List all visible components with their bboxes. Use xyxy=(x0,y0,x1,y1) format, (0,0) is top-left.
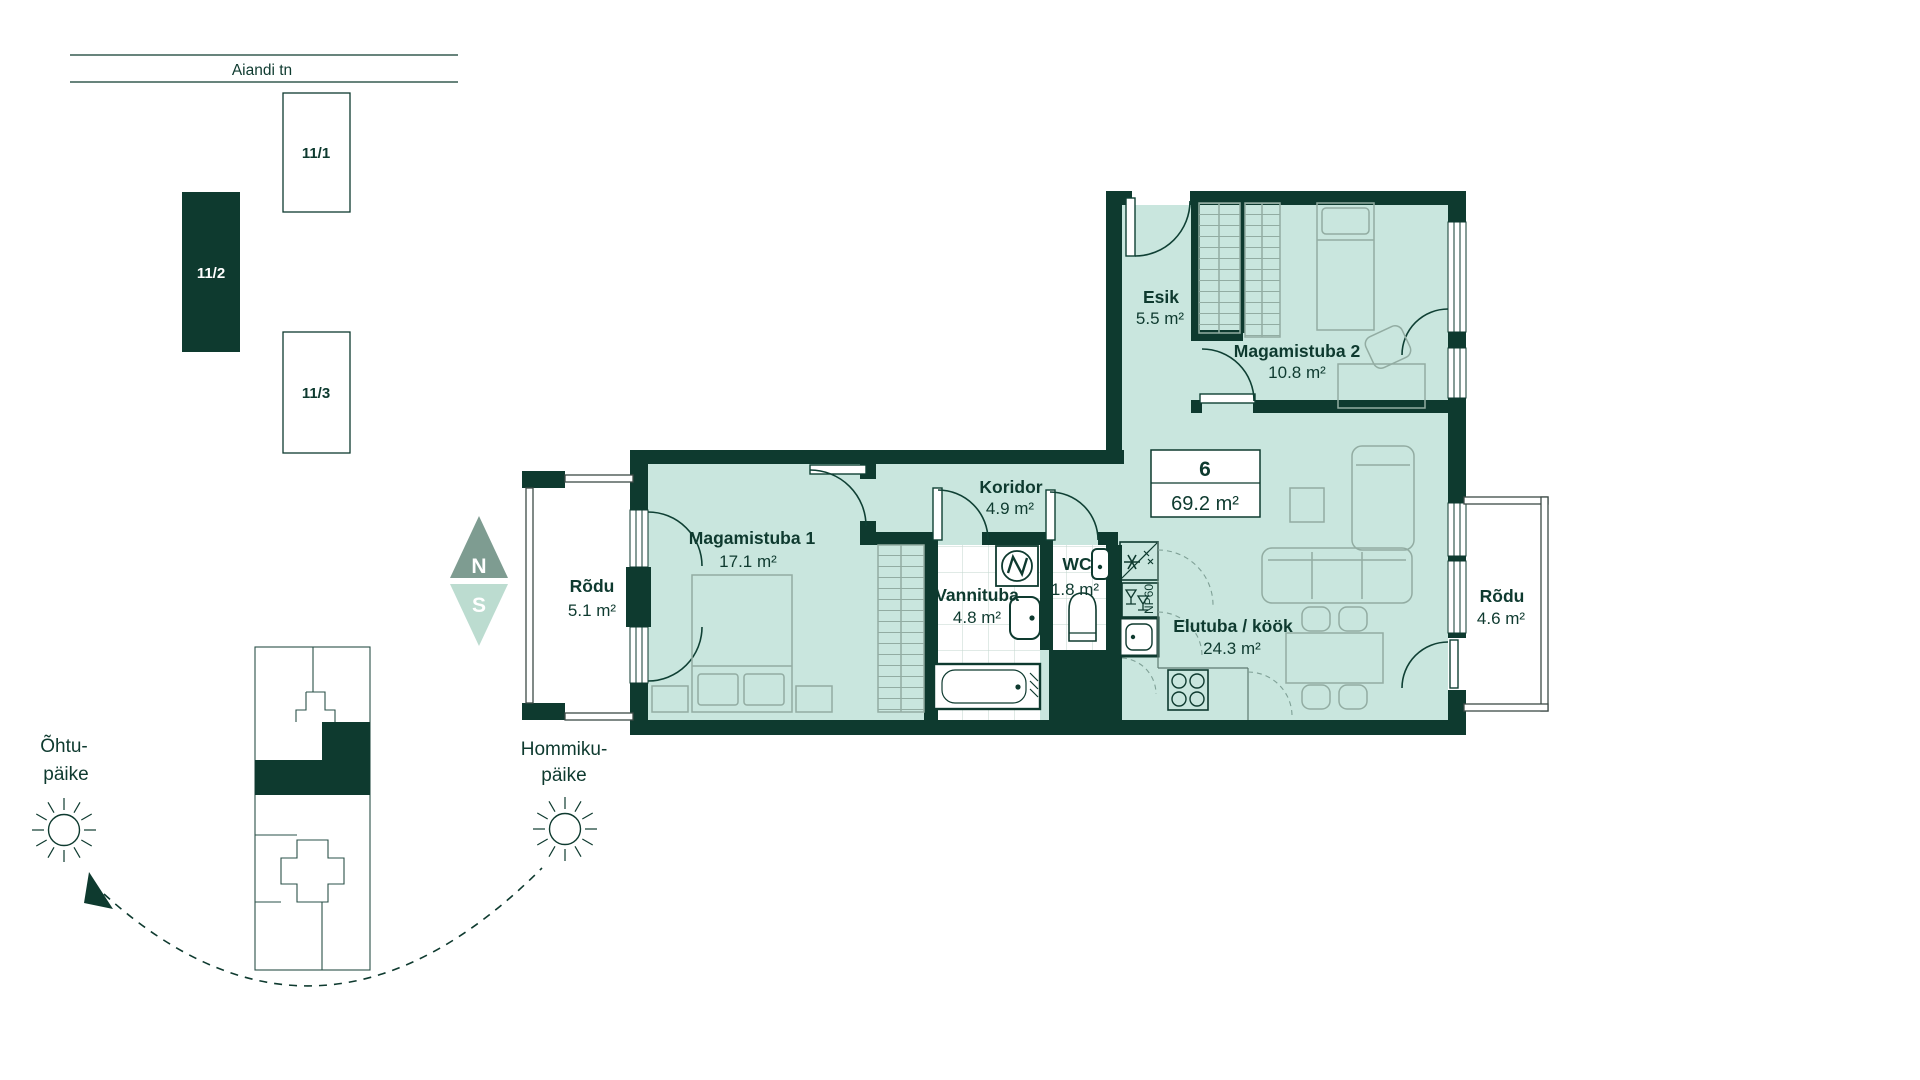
wall-rightwing-west-upper xyxy=(1106,191,1122,462)
window-bedroom2 xyxy=(1448,222,1466,332)
wardrobe-bedroom2-a xyxy=(1199,203,1240,333)
label-bathroom-area: 4.8 m² xyxy=(953,608,1002,627)
building-11-1-label: 11/1 xyxy=(302,145,330,162)
building-footprint xyxy=(255,647,370,970)
label-living-area: 24.3 m² xyxy=(1203,639,1261,658)
footprint-outline xyxy=(255,647,370,970)
compass-north-letter: N xyxy=(471,555,486,578)
window-bedroom1-lower xyxy=(630,627,648,683)
building-11-3-label: 11/3 xyxy=(302,385,330,402)
wardrobe-bedroom1 xyxy=(878,545,924,712)
unit-number: 6 xyxy=(1199,458,1211,481)
wall-corridor-south-2 xyxy=(982,532,1053,545)
sun-evening: Õhtu- päike xyxy=(32,735,96,862)
street-name: Aiandi tn xyxy=(232,62,292,79)
label-bedroom1-area: 17.1 m² xyxy=(719,552,777,571)
morning-sun-icon xyxy=(533,797,597,861)
label-bedroom1-name: Magamistuba 1 xyxy=(689,528,816,548)
wardrobe-bedroom2-b xyxy=(1245,203,1280,337)
wc-washbasin-icon xyxy=(1092,549,1109,579)
balcony-left-rail-top xyxy=(565,475,633,482)
label-corridor-name: Koridor xyxy=(979,477,1042,497)
balcony-left-block-top xyxy=(522,471,565,488)
label-hall-area: 5.5 m² xyxy=(1136,309,1185,328)
floorplan-canvas: Aiandi tn 11/1 11/2 11/3 N S xyxy=(0,0,1920,1080)
balcony-right-rail-bottom xyxy=(1464,704,1548,711)
window-living-upper xyxy=(1448,503,1466,556)
label-bathroom-name: Vannituba xyxy=(935,585,1019,605)
compass: N S xyxy=(450,516,508,646)
morning-sun-label-line2: päike xyxy=(541,765,586,786)
wall-west-lower xyxy=(630,683,648,735)
morning-sun-label-line1: Hommiku- xyxy=(521,739,608,760)
wall-west-pier xyxy=(626,567,651,627)
evening-sun-label-line2: päike xyxy=(43,764,88,785)
label-hall-name: Esik xyxy=(1143,287,1179,307)
label-wc-area: 1.8 m² xyxy=(1051,580,1100,599)
entrance-doorway-gap xyxy=(1132,191,1190,205)
wall-block-below-wc xyxy=(1049,650,1106,720)
unit-area: 69.2 m² xyxy=(1171,493,1239,515)
label-balcony-right-area: 4.6 m² xyxy=(1477,609,1526,628)
balcony-right-rail-top xyxy=(1464,497,1548,504)
balcony-right-rail-east xyxy=(1541,497,1548,711)
evening-sun-label-line1: Õhtu- xyxy=(40,735,88,757)
label-corridor-area: 4.9 m² xyxy=(986,499,1035,518)
label-balcony-left-area: 5.1 m² xyxy=(568,601,617,620)
compass-south-letter: S xyxy=(472,594,486,617)
label-bedroom2-area: 10.8 m² xyxy=(1268,363,1326,382)
label-balcony-right-name: Rõdu xyxy=(1480,586,1525,606)
site-plan: Aiandi tn 11/1 11/2 11/3 xyxy=(70,55,458,453)
label-living-name: Elutuba / köök xyxy=(1173,616,1293,636)
sun-morning: Hommiku- päike xyxy=(521,739,608,861)
wall-bottom xyxy=(630,720,1466,735)
sink-icon xyxy=(1120,618,1158,656)
label-balcony-left-name: Rõdu xyxy=(570,576,615,596)
bathtub-icon xyxy=(934,664,1040,709)
washing-machine-icon xyxy=(996,546,1038,586)
balcony-left-rail-bottom xyxy=(565,713,633,720)
window-bedroom1-upper xyxy=(630,510,648,567)
building-11-2-label: 11/2 xyxy=(197,265,225,282)
balcony-left-rail-west xyxy=(526,488,533,703)
floorplan-page: Aiandi tn 11/1 11/2 11/3 N S xyxy=(0,0,1920,1080)
evening-sun-icon xyxy=(32,798,96,862)
window-bedroom2-small xyxy=(1448,348,1466,398)
toilet-icon xyxy=(1069,593,1096,641)
sun-path-arrowhead-icon xyxy=(84,872,113,909)
unit-info-box: 6 69.2 m² xyxy=(1151,450,1260,517)
dishwasher-label: NP60 xyxy=(1142,584,1156,614)
window-living-lower xyxy=(1448,561,1466,633)
label-bedroom2-name: Magamistuba 2 xyxy=(1234,341,1361,361)
balcony-left-block-bottom xyxy=(522,703,565,720)
wall-corridor-south-3 xyxy=(1098,532,1118,545)
wall-bedroom2-south xyxy=(1253,400,1466,413)
wall-stub-bedroom1-bottom xyxy=(860,521,876,532)
wall-top-left-wing xyxy=(630,450,1124,464)
label-wc-name: WC xyxy=(1062,554,1092,574)
